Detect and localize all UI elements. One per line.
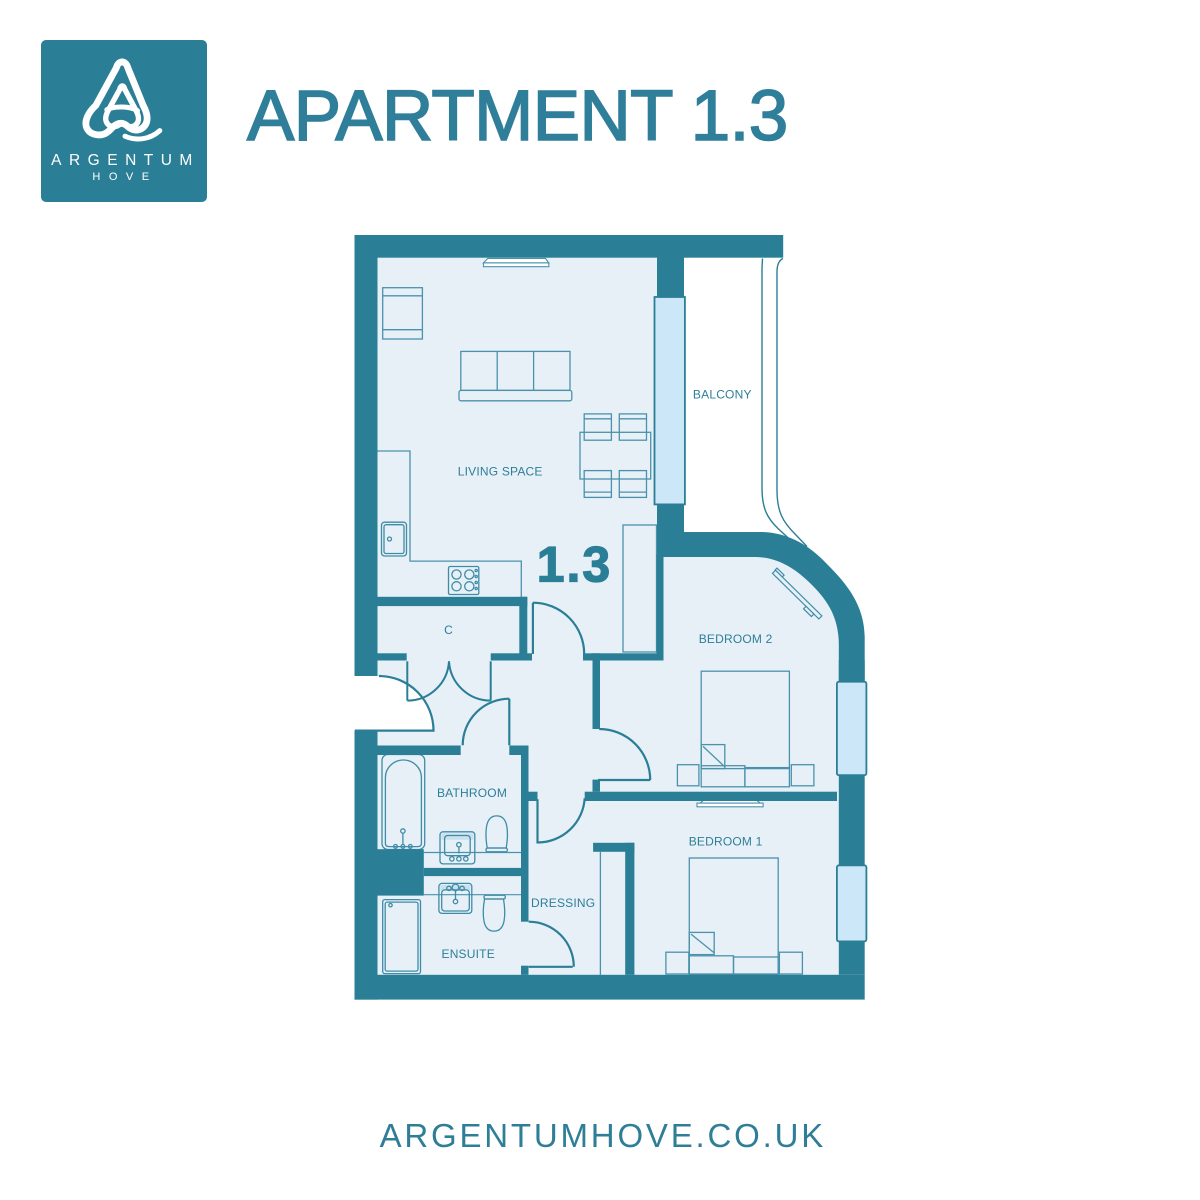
svg-text:BALCONY: BALCONY	[693, 388, 752, 402]
svg-text:BEDROOM 1: BEDROOM 1	[689, 835, 763, 849]
svg-text:HOVE: HOVE	[92, 171, 157, 183]
svg-text:BEDROOM 2: BEDROOM 2	[699, 632, 773, 646]
svg-text:APARTMENT 1.3: APARTMENT 1.3	[247, 77, 788, 156]
svg-text:C: C	[444, 623, 453, 637]
svg-text:BATHROOM: BATHROOM	[437, 786, 507, 800]
svg-text:LIVING SPACE: LIVING SPACE	[458, 465, 543, 479]
svg-text:ENSUITE: ENSUITE	[441, 947, 494, 961]
svg-text:ARGENTUMHOVE.CO.UK: ARGENTUMHOVE.CO.UK	[380, 1117, 826, 1154]
svg-text:DRESSING: DRESSING	[531, 896, 595, 910]
svg-text:1.3: 1.3	[537, 537, 613, 593]
svg-text:ARGENTUM: ARGENTUM	[51, 152, 200, 169]
